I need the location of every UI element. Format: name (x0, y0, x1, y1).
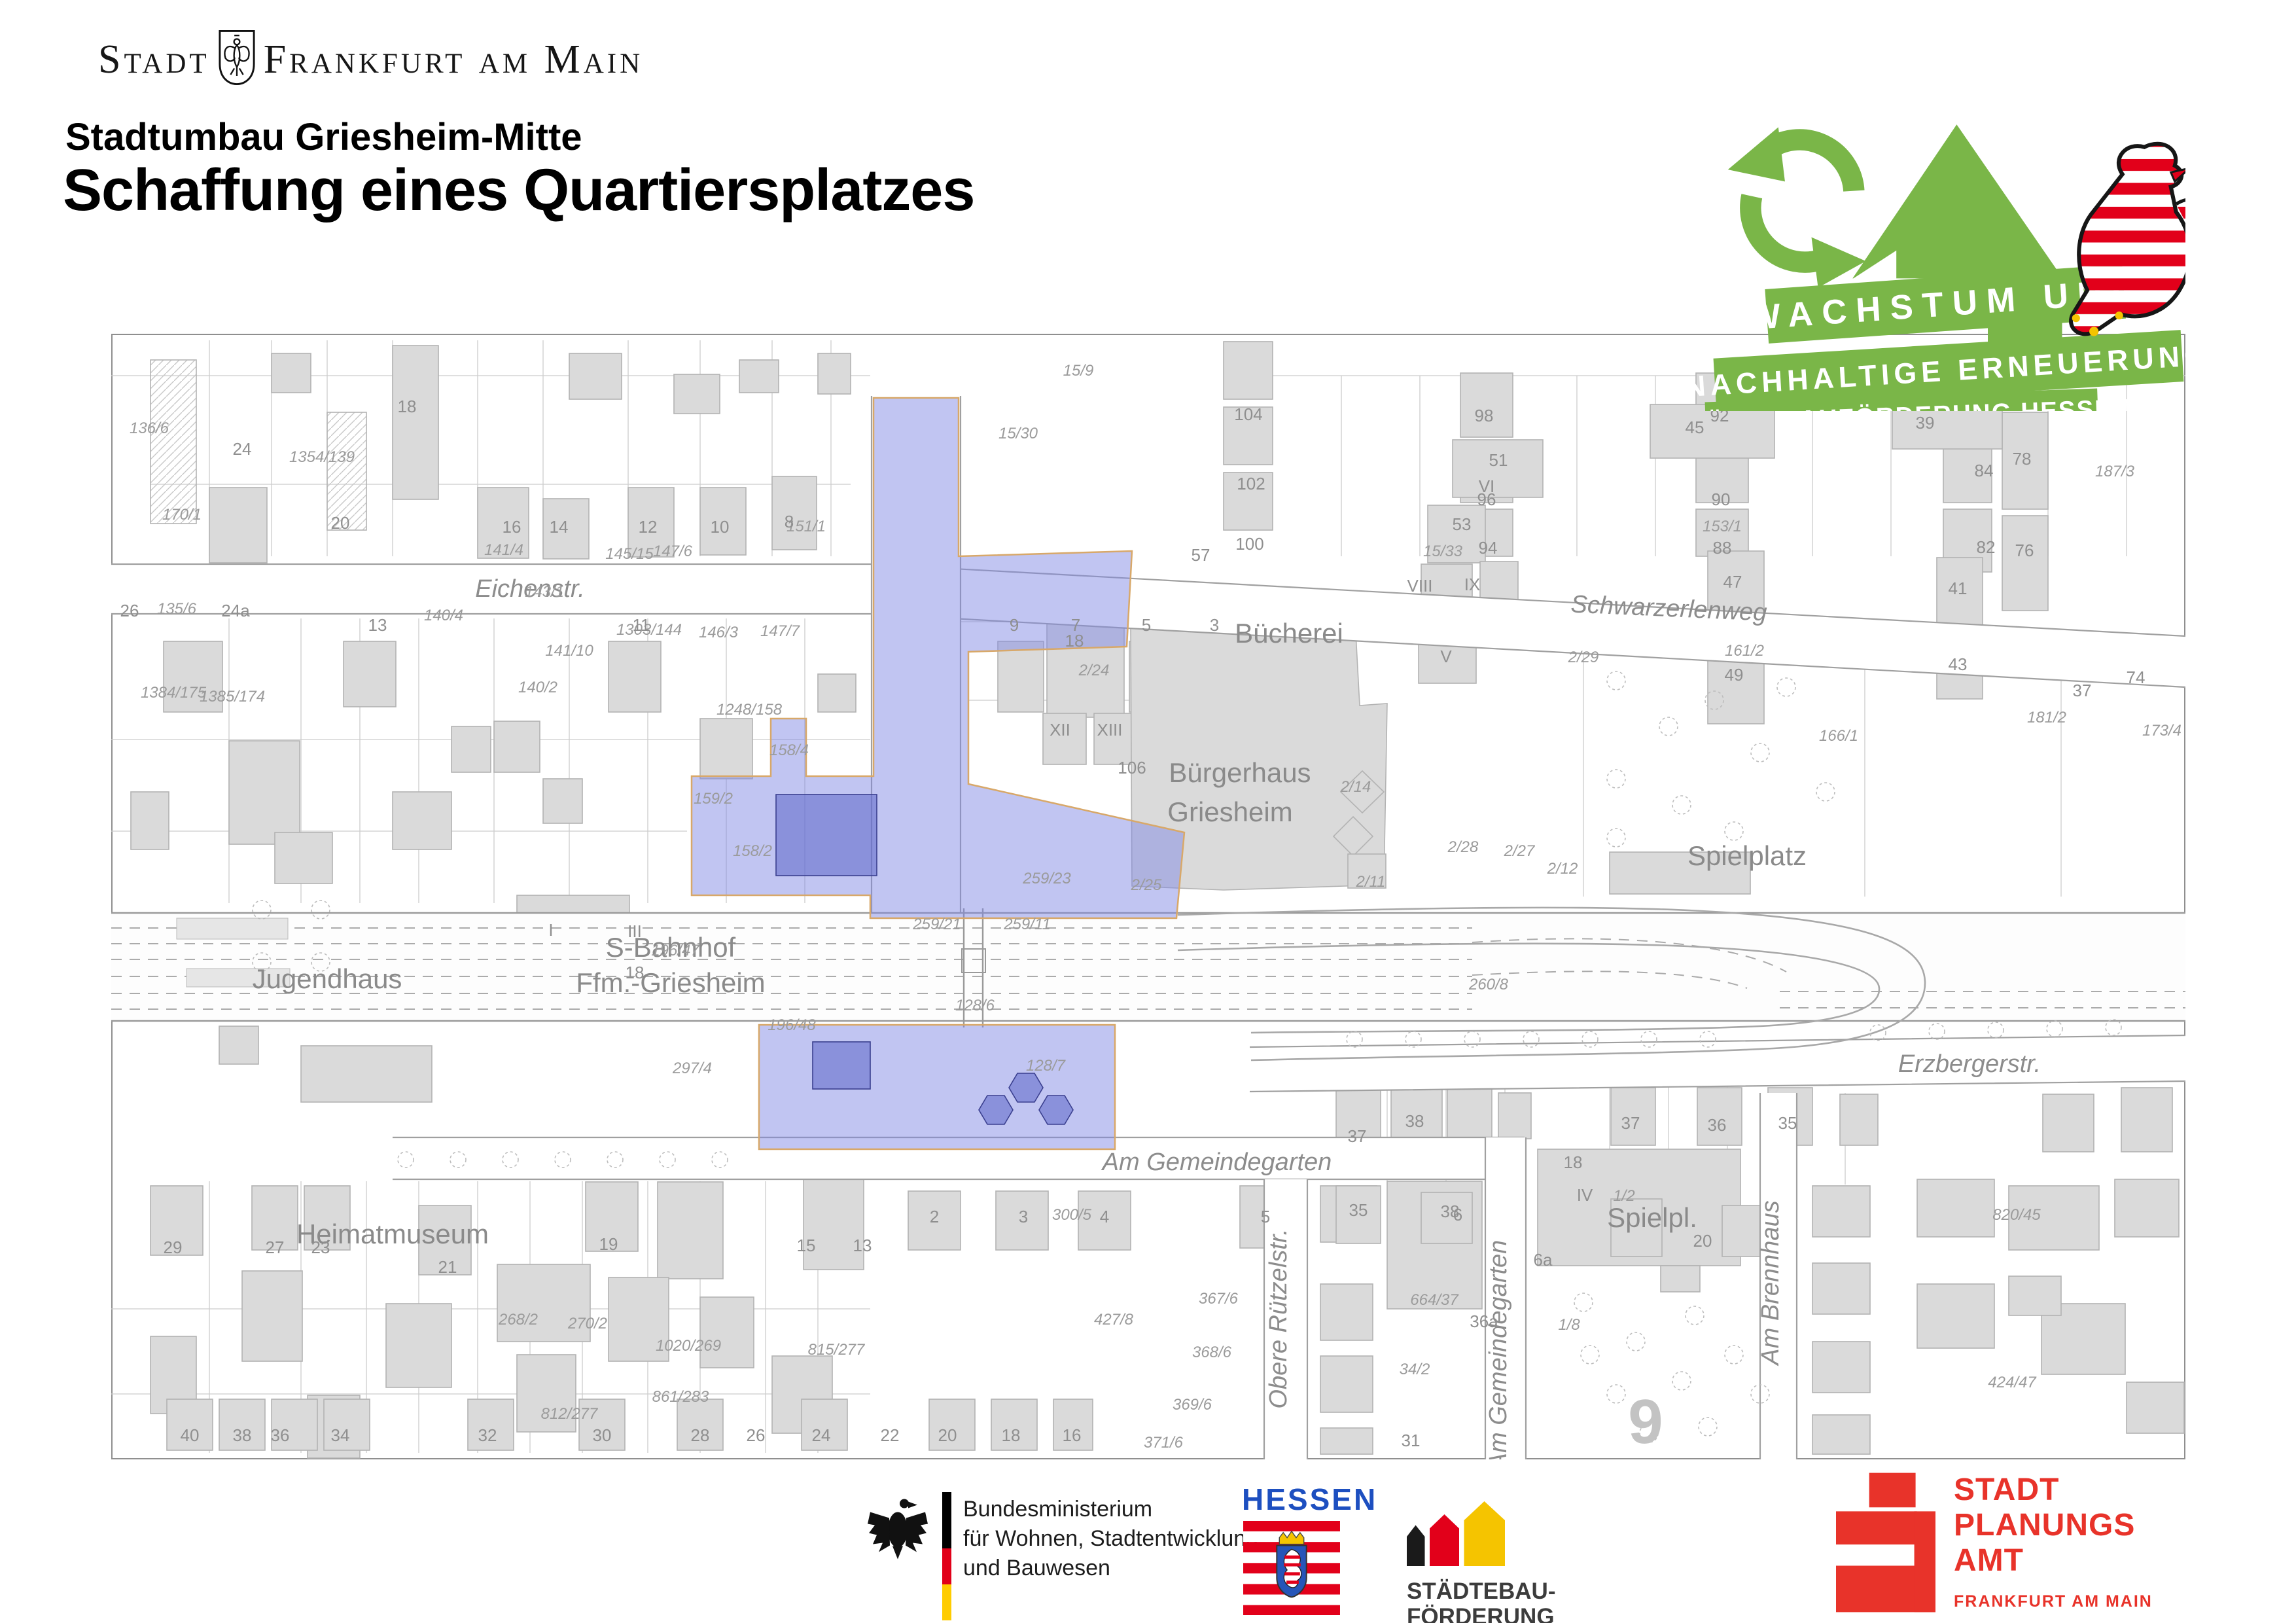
map-label: 2/14 (1340, 778, 1371, 796)
program-badge: WACHSTUM UND NACHHALTIGE ERNEUERUNG STÄD… (1688, 110, 2185, 411)
map-label: 45 (1686, 418, 1704, 437)
map-label: Griesheim (1167, 796, 1292, 827)
map-label: 19 (599, 1234, 618, 1254)
map-label: Spielpl. (1607, 1202, 1697, 1233)
map-label: 26 (120, 601, 139, 620)
map-label: 1248/158 (716, 701, 783, 719)
page-title: Schaffung eines Quartiersplatzes (63, 157, 974, 224)
map-label: 76 (2015, 541, 2034, 560)
map-label: 128/6 (955, 997, 995, 1014)
map-label: 369/6 (1173, 1396, 1212, 1414)
map-label: 34/2 (1400, 1361, 1430, 1378)
spa-line1: STADT (1954, 1472, 2153, 1508)
map-label: Spielplatz (1687, 840, 1807, 871)
staedtebaufoerderung-logo: STÄDTEBAU- FÖRDERUNG von Bund, Ländern u… (1407, 1491, 1557, 1623)
bmwsb-line2: für Wohnen, Stadtentwicklung (963, 1524, 1258, 1554)
map-label: 18 (398, 397, 417, 416)
map-label: 270/2 (567, 1315, 607, 1332)
map-label: 18 (626, 963, 645, 982)
map-label: 187/3 (2095, 463, 2135, 480)
map-label: 53 (1453, 514, 1472, 534)
map-label: 2/25 (1131, 876, 1162, 894)
map-label: 28 (691, 1425, 710, 1445)
map-label: 78 (2013, 449, 2032, 469)
map-label: Obere Rützelstr. (1265, 1228, 1292, 1408)
map-label: V (1440, 647, 1452, 666)
map-label: 2/28 (1447, 838, 1479, 856)
poster-page: Stadt Frankfurt am Main Stadtumbau Gries… (0, 0, 2296, 1623)
map-label: 268/2 (498, 1311, 538, 1329)
map-label: 24 (233, 439, 252, 459)
hessen-lion-icon (2071, 144, 2185, 336)
map-label: 30 (593, 1425, 612, 1445)
map-label: 74 (2127, 668, 2146, 687)
map-label: 196/47 (651, 942, 700, 959)
map-label: 297/4 (672, 1060, 712, 1077)
map-label: 3 (1210, 615, 1219, 635)
map-label: 135/6 (157, 600, 197, 618)
map-label: 51 (1489, 450, 1508, 470)
map-label: 260/8 (1468, 976, 1509, 993)
map-label: 23 (311, 1238, 330, 1257)
map-label: 2/27 (1504, 842, 1536, 860)
map-label: 18 (1065, 631, 1084, 651)
map-label: 5 (1261, 1207, 1270, 1226)
hessen-coat-of-arms-icon (1243, 1607, 1340, 1618)
hessen-wordmark: HESSEN (1242, 1482, 1341, 1517)
project-subtitle: Stadtumbau Griesheim-Mitte (65, 115, 582, 159)
stb-line1: STÄDTEBAU- (1407, 1578, 1557, 1604)
map-label: 90 (1712, 490, 1731, 509)
map-label: 106 (1118, 758, 1146, 777)
map-label: 15/30 (998, 425, 1038, 442)
stb-line2: FÖRDERUNG (1407, 1604, 1557, 1623)
map-label: 1/8 (1558, 1316, 1580, 1334)
map-label: 18 (1002, 1425, 1021, 1445)
bmwsb-line1: Bundesministerium (963, 1495, 1258, 1524)
bmwsb-line3: und Bauwesen (963, 1554, 1258, 1583)
frankfurt-eagle-crest-icon (218, 29, 256, 90)
map-label: 49 (1725, 665, 1744, 685)
map-label: 173/4 (2142, 722, 2181, 740)
map-label: VIII (1407, 576, 1432, 596)
map-label: Ffm.-Griesheim (576, 967, 765, 998)
map-label: 57 (1192, 545, 1210, 565)
map-label: XIII (1097, 720, 1122, 740)
map-label: 170/1 (162, 506, 202, 524)
map-label: 259/11 (1003, 916, 1051, 933)
german-flag-bar (942, 1492, 951, 1620)
map-label: 181/2 (2027, 709, 2066, 726)
map-label: 20 (331, 513, 350, 533)
map-label: 35 (1349, 1200, 1368, 1220)
map-label: 145/15 (605, 545, 654, 563)
map-label: 1384/175 (141, 684, 207, 702)
recycle-arrows-icon (1728, 127, 1866, 287)
bmwsb-logo: Bundesministerium für Wohnen, Stadtentwi… (865, 1492, 1258, 1620)
map-label: 37 (2073, 681, 2092, 700)
hessen-logo: HESSEN (1242, 1482, 1341, 1618)
spa-glyph-icon (1836, 1472, 1935, 1616)
map-label: 104 (1234, 404, 1262, 424)
map-label: 259/21 (912, 916, 961, 933)
map-label: 1/2 (1613, 1187, 1634, 1205)
map-label: 16 (1063, 1425, 1082, 1445)
spa-line2: PLANUNGS (1954, 1508, 2153, 1543)
map-label: 861/283 (652, 1388, 709, 1406)
map-label: 11 (633, 615, 650, 635)
map-label: 1385/174 (200, 688, 265, 705)
map-label: Bücherei (1235, 618, 1343, 649)
map-label: I (548, 920, 553, 940)
map-label: 153/1 (1703, 518, 1742, 535)
map-label: 98 (1475, 406, 1494, 425)
map-label: 147/7 (760, 622, 801, 640)
map-label: 371/6 (1144, 1434, 1184, 1452)
map-label: 166/1 (1819, 727, 1858, 745)
map-label: 84 (1975, 461, 1994, 480)
map-label: 21 (438, 1257, 457, 1277)
map-label: 15/33 (1423, 543, 1463, 560)
map-label: XII (1050, 720, 1070, 740)
map-label: 36a (1470, 1311, 1498, 1331)
cadastral-map: Eichenstr.SchwarzerlenwegErzbergerstr.Am… (111, 334, 2185, 1459)
map-label: 3 (1019, 1207, 1028, 1226)
map-label: Erzbergerstr. (1898, 1050, 2041, 1078)
map-label: 2 (930, 1207, 939, 1226)
map-label: 9 (1628, 1387, 1663, 1457)
map-label: Am Brennhaus (1757, 1200, 1784, 1366)
map-label: 427/8 (1094, 1311, 1134, 1329)
map-label: 5 (1142, 615, 1151, 635)
map-label: 34 (331, 1425, 350, 1445)
map-label: 15/9 (1063, 362, 1094, 380)
map-label: 27 (266, 1238, 285, 1257)
map-label: 8 (785, 512, 794, 531)
map-label: 424/47 (1988, 1374, 2037, 1391)
city-logo: Stadt Frankfurt am Main (98, 29, 643, 90)
federal-eagle-icon (865, 1492, 930, 1567)
map-label: IV (1577, 1185, 1593, 1205)
map-label: 82 (1977, 537, 1996, 557)
map-label: 141/10 (545, 642, 593, 660)
map-label: 47 (1723, 572, 1742, 592)
three-houses-icon (1407, 1558, 1505, 1569)
map-label: 2/11 (1356, 873, 1386, 891)
map-label: 38 (233, 1425, 252, 1445)
map-label: 368/6 (1192, 1344, 1232, 1361)
map-label: 2/24 (1078, 662, 1110, 679)
map-label: 159/2 (694, 790, 733, 808)
map-label: 41 (1949, 579, 1968, 598)
map-label: 136/6 (130, 419, 169, 437)
map-label: 6a (1534, 1250, 1553, 1270)
map-label: 1354/139 (289, 448, 355, 466)
map-label: 38 (1441, 1202, 1460, 1221)
map-label: 94 (1479, 538, 1498, 558)
map-label: 20 (938, 1425, 957, 1445)
map-label: 88 (1713, 538, 1732, 558)
map-label: 15 (797, 1236, 816, 1255)
map-label: 300/5 (1052, 1206, 1092, 1224)
map-label: 367/6 (1199, 1290, 1239, 1308)
map-label: 196/48 (768, 1016, 816, 1034)
map-label: 32 (478, 1425, 497, 1445)
map-label: 141/4 (484, 541, 523, 559)
footer-logos: Bundesministerium für Wohnen, Stadtentwi… (0, 1466, 2296, 1623)
map-label: 22 (881, 1425, 900, 1445)
map-label: 38 (1405, 1111, 1424, 1131)
map-label: 820/45 (1992, 1206, 2041, 1224)
map-label: 2/29 (1568, 649, 1599, 666)
map-label: 2/12 (1547, 860, 1578, 878)
map-label: 1020/269 (656, 1337, 721, 1355)
map-label: 12 (639, 517, 658, 537)
map-label: 812/277 (541, 1405, 599, 1423)
map-label: 10 (711, 517, 730, 537)
map-label: 29 (164, 1238, 183, 1257)
map-label: 14 (550, 517, 569, 537)
map-label: 161/2 (1725, 642, 1764, 660)
map-label: 18 (1564, 1152, 1583, 1172)
map-label: Bürgerhaus (1169, 757, 1311, 788)
map-label: 4 (1100, 1207, 1109, 1226)
map-label: 128/7 (1026, 1057, 1067, 1075)
spa-sub: FRANKFURT AM MAIN (1954, 1592, 2153, 1611)
map-label: III (627, 921, 642, 941)
map-label: 96 (1477, 490, 1496, 509)
map-label: 259/23 (1022, 870, 1071, 887)
spa-line3: AMT (1954, 1543, 2153, 1578)
map-label: 100 (1235, 534, 1263, 554)
logo-word-frankfurt: Frankfurt am Main (264, 39, 644, 80)
railway-layer (111, 908, 2185, 1027)
map-label: 146/3 (699, 624, 739, 641)
logo-word-stadt: Stadt (98, 39, 210, 80)
map-label: 36 (1708, 1115, 1727, 1135)
map-label: 13 (853, 1236, 872, 1255)
map-label: 140/2 (518, 679, 557, 696)
map-label: Am Gemeindegarten (1101, 1149, 1332, 1176)
map-label: 39 (1916, 413, 1935, 433)
map-label: 26 (747, 1425, 766, 1445)
map-label: 37 (1348, 1126, 1367, 1146)
map-label: 35 (1778, 1113, 1797, 1133)
map-label: 815/277 (808, 1341, 866, 1359)
map-label: 143/1 (525, 583, 564, 601)
map-label: Am Gemeindegarten (1485, 1240, 1512, 1459)
map-label: 36 (271, 1425, 290, 1445)
map-label: 158/2 (733, 842, 772, 860)
map-label: 43 (1949, 654, 1968, 674)
map-label: 20 (1693, 1231, 1712, 1251)
map-label: 16 (503, 517, 521, 537)
stadtplanungsamt-logo: STADT PLANUNGS AMT FRANKFURT AM MAIN (1836, 1472, 2153, 1616)
map-label: 9 (1010, 615, 1019, 635)
map-label: IX (1464, 575, 1481, 594)
map-label: 37 (1621, 1113, 1640, 1133)
map-label: 31 (1402, 1431, 1421, 1450)
map-label: 664/37 (1410, 1291, 1459, 1309)
map-label: 158/4 (769, 741, 809, 759)
map-label: Jugendhaus (253, 963, 402, 994)
map-label: 140/4 (424, 607, 463, 624)
map-label: 13 (368, 615, 387, 635)
map-label: 24 (812, 1425, 831, 1445)
map-label: 147/6 (653, 543, 693, 560)
map-label: 102 (1237, 474, 1265, 493)
map-label: 24a (221, 601, 250, 620)
map-label: 40 (181, 1425, 200, 1445)
